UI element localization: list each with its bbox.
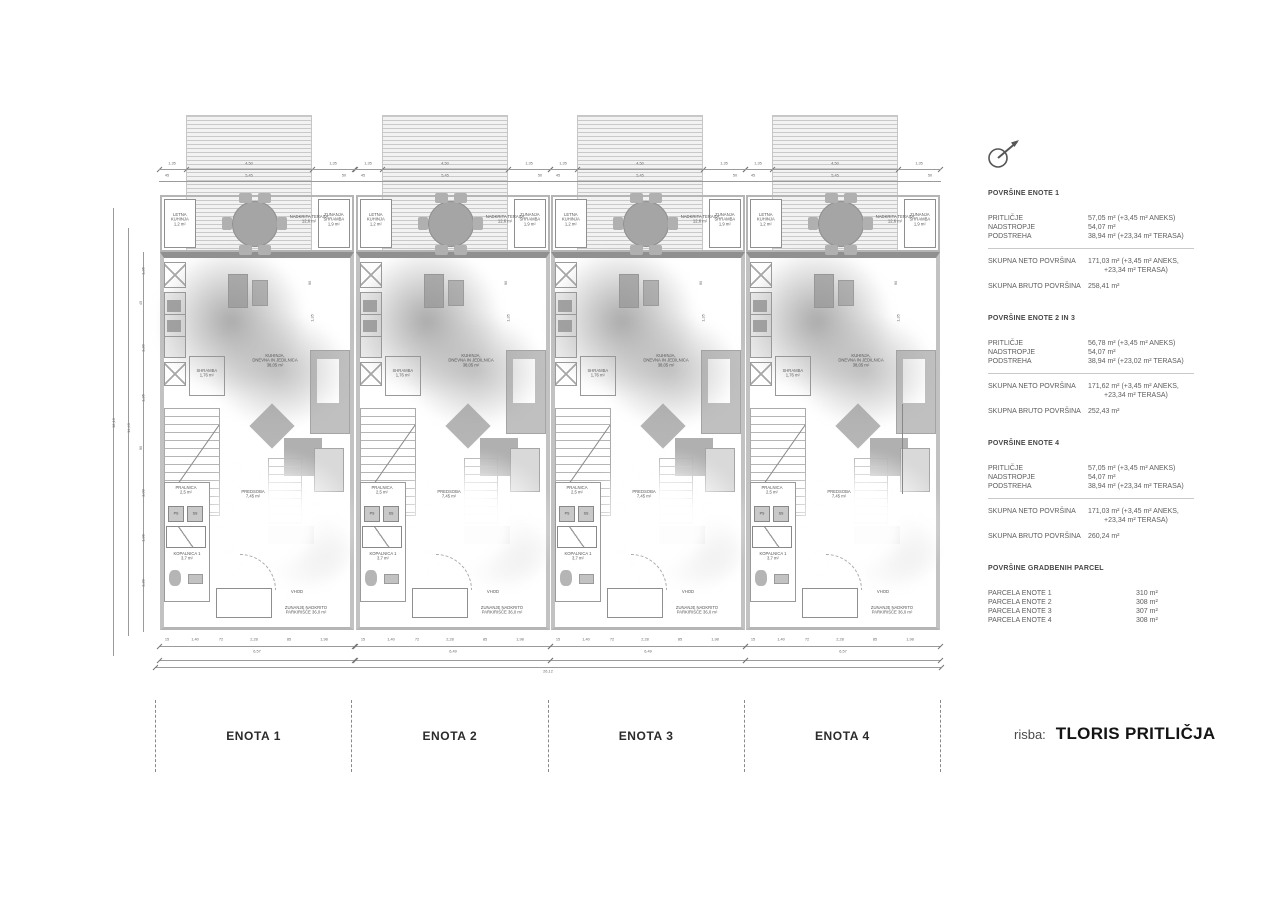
dimension-line (550, 660, 746, 661)
entrance-label: VHOD (287, 590, 308, 595)
living-room-label: KUHINJA, DNEVNA IN JEDILNICA 38,05 m² (820, 354, 903, 368)
pantry-room: SHRAMBA 1,76 m² (580, 356, 616, 396)
covered-terrace: LETNA KUHINJA 1,2 m² ZUNANJA SHRAMBA 1,9… (551, 195, 745, 252)
door-swing (240, 554, 276, 590)
dimension-line (550, 181, 746, 182)
dimension-value: 90 (139, 446, 143, 450)
dimension-value: 1,35 (720, 162, 728, 166)
dimension-value: 72 (219, 638, 223, 642)
dimension-value: 85 (678, 638, 682, 642)
dimension-value: 50 (342, 174, 346, 178)
area-block-heading: POVRŠINE ENOTE 4 (988, 440, 1218, 447)
parcel-value: 308 m² (1136, 616, 1218, 625)
dimension-value: 2,28 (836, 638, 844, 642)
door-swing (826, 554, 862, 590)
entrance-label: VHOD (483, 590, 504, 595)
stair-landing (659, 526, 705, 544)
dimension-value: 1,40 (191, 638, 199, 642)
kitchen-appliance (363, 320, 377, 332)
terrace-label: NADKRITA TERASA 12,6 m² (481, 215, 530, 225)
area-row-value: 57,05 m² (+3,45 m² ANEKS) (1088, 464, 1218, 473)
divider (988, 373, 1194, 374)
area-row: PRITLIČJE 57,05 m² (+3,45 m² ANEKS) (988, 464, 1218, 473)
dimension-value: 15 (165, 638, 169, 642)
unit-interior: SHRAMBA 1,76 m² KUHINJA, (551, 252, 745, 630)
dimension-value: 45 (165, 174, 169, 178)
furniture (838, 280, 854, 306)
room-label: SHRAMBA 1,76 m² (783, 369, 804, 379)
unit-module: 1,35 4,50 1,35 45 5,45 50 LETNA KUHINJA … (159, 115, 355, 675)
unit-interior: SHRAMBA 1,76 m² KUHINJA, (160, 252, 354, 630)
dimension-value: 15 (361, 638, 365, 642)
chair (844, 245, 857, 255)
toilet (560, 570, 572, 586)
divider (988, 248, 1194, 249)
area-block: POVRŠINE ENOTE 1 PRITLIČJE 57,05 m² (+3,… (988, 190, 1218, 291)
unit-interior: SHRAMBA 1,76 m² KUHINJA, (746, 252, 940, 630)
wardrobe (164, 262, 186, 288)
living-room-label: KUHINJA, DNEVNA IN JEDILNICA 38,05 m² (625, 354, 708, 368)
chair (630, 245, 643, 255)
area-total-label: SKUPNA BRUTO POVRŠINA (988, 282, 1088, 291)
dimension-value: 5,45 (636, 174, 644, 178)
dimension-value: 2,39 (142, 579, 146, 587)
hallway-label: PREDSOBA 7,45 m² (817, 490, 860, 500)
dimension-value: 1,35 (168, 162, 176, 166)
side-table (314, 448, 344, 492)
dimension-line (550, 646, 746, 647)
area-total-value: 171,03 m² (+3,45 m² ANEKS,+23,34 m² TERA… (1088, 507, 1218, 525)
chair (630, 193, 643, 203)
dimension-line (745, 660, 941, 661)
wardrobe (360, 362, 382, 386)
dimension-value: 85 (287, 638, 291, 642)
area-row: PRITLIČJE 56,78 m² (+3,45 m² ANEKS) (988, 339, 1218, 348)
area-row-value: 38,94 m² (+23,34 m² TERASA) (1088, 232, 1218, 241)
carport-label: ZUNANJE NADKRITO PARKIRIŠČE 36,0 m² (668, 606, 727, 616)
room-label: LETNA KUHINJA 1,2 m² (757, 213, 775, 227)
room-label: SHRAMBA 1,76 m² (393, 369, 414, 379)
covered-terrace: LETNA KUHINJA 1,2 m² ZUNANJA SHRAMBA 1,9… (746, 195, 940, 252)
dimension-value: 5,45 (245, 174, 253, 178)
area-total-row: SKUPNA NETO POVRŠINA 171,03 m² (+3,45 m²… (988, 257, 1218, 275)
utility-label: PRALNICA 2,5 m² (562, 486, 593, 496)
dimension-value: 15 (751, 638, 755, 642)
dimension-value: 2,28 (250, 638, 258, 642)
toilet (755, 570, 767, 586)
room-label: SHRAMBA 1,76 m² (588, 369, 609, 379)
dimension-line (159, 646, 355, 647)
drawing-label-prefix: risba: (1014, 727, 1046, 742)
area-block-heading: POVRŠINE ENOTE 1 (988, 190, 1218, 197)
living-room-label: KUHINJA, DNEVNA IN JEDILNICA 38,05 m² (430, 354, 513, 368)
interior-dimension-line (902, 404, 916, 494)
area-row-label: PODSTREHA (988, 482, 1088, 491)
furniture (228, 274, 248, 308)
wardrobe (750, 362, 772, 386)
area-total-label: SKUPNA BRUTO POVRŠINA (988, 532, 1088, 541)
kitchen-appliance (753, 300, 767, 312)
parcel-row: PARCELA ENOTE 1 310 m² (988, 589, 1218, 598)
chair (825, 193, 838, 203)
terrace-label: NADKRITA TERASA 12,6 m² (676, 215, 725, 225)
area-total-value: 252,43 m² (1088, 407, 1218, 416)
chair (649, 245, 662, 255)
dryer: SS (187, 506, 203, 522)
parcel-block: POVRŠINE GRADBENIH PARCEL PARCELA ENOTE … (988, 565, 1218, 625)
dimension-value: 50 (928, 174, 932, 178)
washer: PS (754, 506, 770, 522)
area-total-value: 258,41 m² (1088, 282, 1218, 291)
parcel-row: PARCELA ENOTE 3 307 m² (988, 607, 1218, 616)
dimension-value: 1,35 (754, 162, 762, 166)
dimension-value: 1,98 (142, 534, 146, 542)
dimension-value: 1,35 (142, 394, 146, 402)
area-rows: PRITLIČJE 57,05 m² (+3,45 m² ANEKS) NADS… (988, 464, 1218, 491)
dimension-value: 5,45 (441, 174, 449, 178)
unit-label-band: ENOTA 1 ENOTA 2 ENOTA 3 ENOTA 4 (155, 700, 941, 772)
covered-terrace: LETNA KUHINJA 1,2 m² ZUNANJA SHRAMBA 1,9… (356, 195, 550, 252)
bathtub (557, 526, 597, 548)
dimension-value: 50 (733, 174, 737, 178)
wardrobe (555, 362, 577, 386)
terrace-label: NADKRITA TERASA 12,6 m² (871, 215, 920, 225)
dimension-value: 50 (538, 174, 542, 178)
area-row: NADSTROPJE 54,07 m² (988, 348, 1218, 357)
unit-bay: ENOTA 3 (548, 700, 744, 772)
dimension-value: 90 (308, 281, 312, 285)
summer-kitchen-room: LETNA KUHINJA 1,2 m² (360, 199, 392, 248)
dimension-line (745, 169, 941, 170)
chair (454, 245, 467, 255)
area-row-label: NADSTROPJE (988, 348, 1088, 357)
unit-width-value: 6,49 (449, 650, 457, 654)
sink (188, 574, 203, 584)
unit-name: ENOTA 3 (619, 729, 674, 743)
carport-label: ZUNANJE NADKRITO PARKIRIŠČE 36,0 m² (863, 606, 922, 616)
dimension-value: 1,35 (364, 162, 372, 166)
area-row: PODSTREHA 38,94 m² (+23,34 m² TERASA) (988, 482, 1218, 491)
furniture (252, 280, 268, 306)
unit-module: 1,35 4,50 1,35 45 5,45 50 LETNA KUHINJA … (550, 115, 746, 675)
unit-name: ENOTA 1 (226, 729, 281, 743)
covered-terrace: LETNA KUHINJA 1,2 m² ZUNANJA SHRAMBA 1,9… (160, 195, 354, 252)
dimension-value: 4,50 (441, 162, 449, 166)
door-swing (436, 554, 472, 590)
door-swing (631, 554, 667, 590)
sink (774, 574, 789, 584)
kitchen-appliance (558, 320, 572, 332)
unit-width-value: 6,57 (253, 650, 261, 654)
dimension-value: 1,35 (559, 162, 567, 166)
dimension-value: 2,28 (446, 638, 454, 642)
area-block-heading: POVRŠINE ENOTE 2 IN 3 (988, 315, 1218, 322)
dimension-value: 4,50 (831, 162, 839, 166)
dimension-line (355, 646, 551, 647)
terrace-table (623, 201, 669, 247)
area-total-row: SKUPNA NETO POVRŠINA 171,62 m² (+3,45 m²… (988, 382, 1218, 400)
sink (579, 574, 594, 584)
hallway-label: PREDSOBA 7,45 m² (622, 490, 665, 500)
living-room-label: KUHINJA, DNEVNA IN JEDILNICA 38,05 m² (234, 354, 317, 368)
chair (418, 217, 428, 230)
area-row: NADSTROPJE 54,07 m² (988, 473, 1218, 482)
dimension-value: 45 (751, 174, 755, 178)
parcel-value: 308 m² (1136, 598, 1218, 607)
dimension-value: 1,98 (320, 638, 328, 642)
area-row-value: 54,07 m² (1088, 473, 1218, 482)
kitchen-appliance (167, 320, 181, 332)
area-row-value: 54,07 m² (1088, 223, 1218, 232)
floor-plan: 1,35 4,50 1,35 45 5,45 50 LETNA KUHINJA … (0, 0, 960, 700)
dimension-value: 45 (139, 301, 143, 305)
area-row-label: PODSTREHA (988, 357, 1088, 366)
stair-landing (268, 526, 314, 544)
dimension-value: 1,35 (507, 314, 511, 322)
area-total-value: 171,03 m² (+3,45 m² ANEKS,+23,34 m² TERA… (1088, 257, 1218, 275)
kitchen-appliance (753, 320, 767, 332)
overall-dimension-line (155, 667, 941, 668)
washer: PS (559, 506, 575, 522)
area-row-value: 57,05 m² (+3,45 m² ANEKS) (1088, 214, 1218, 223)
area-total-row: SKUPNA BRUTO POVRŠINA 260,24 m² (988, 532, 1218, 541)
dimension-tick (938, 644, 944, 650)
area-row-value: 38,94 m² (+23,02 m² TERASA) (1088, 357, 1218, 366)
dimension-value: 4,50 (245, 162, 253, 166)
dimension-value: 2,28 (641, 638, 649, 642)
wardrobe (360, 262, 382, 288)
unit-module: 1,35 4,50 1,35 45 5,45 50 LETNA KUHINJA … (745, 115, 941, 675)
kitchen-appliance (363, 300, 377, 312)
area-block: POVRŠINE ENOTE 4 PRITLIČJE 57,05 m² (+3,… (988, 440, 1218, 541)
furniture (619, 274, 639, 308)
dimension-value: 1,35 (525, 162, 533, 166)
chair (222, 217, 232, 230)
chair (808, 217, 818, 230)
area-row: PRITLIČJE 57,05 m² (+3,45 m² ANEKS) (988, 214, 1218, 223)
terrace-table (232, 201, 278, 247)
area-row-value: 56,78 m² (+3,45 m² ANEKS) (1088, 339, 1218, 348)
chair (239, 245, 252, 255)
parcel-label: PARCELA ENOTE 2 (988, 598, 1136, 607)
utility-label: PRALNICA 2,5 m² (757, 486, 788, 496)
area-row-label: PRITLIČJE (988, 339, 1088, 348)
area-row-label: NADSTROPJE (988, 223, 1088, 232)
unit-bay: ENOTA 1 (155, 700, 351, 772)
dimension-value: 85 (873, 638, 877, 642)
furniture (814, 274, 834, 308)
dryer: SS (578, 506, 594, 522)
hallway-label: PREDSOBA 7,45 m² (427, 490, 470, 500)
dimension-value: 45 (556, 174, 560, 178)
chair (239, 193, 252, 203)
pantry-room: SHRAMBA 1,76 m² (775, 356, 811, 396)
dimension-line (355, 169, 551, 170)
area-total-label: SKUPNA NETO POVRŠINA (988, 257, 1088, 275)
dimension-value: 15 (556, 638, 560, 642)
area-row-label: NADSTROPJE (988, 473, 1088, 482)
terrace-label: NADKRITA TERASA 12,6 m² (285, 215, 334, 225)
dimension-value: 90 (699, 281, 703, 285)
area-total-row: SKUPNA BRUTO POVRŠINA 252,43 m² (988, 407, 1218, 416)
wardrobe (555, 262, 577, 288)
furniture (448, 280, 464, 306)
dimension-value: 3,09 (142, 489, 146, 497)
entrance-canopy (607, 588, 663, 618)
dimension-line (159, 660, 355, 661)
unit-bay: ENOTA 4 (744, 700, 941, 772)
room-label: LETNA KUHINJA 1,2 m² (367, 213, 385, 227)
unit-width-value: 6,57 (839, 650, 847, 654)
toilet (365, 570, 377, 586)
dimension-value: 16,10 (113, 418, 117, 428)
room-label: LETNA KUHINJA 1,2 m² (171, 213, 189, 227)
dimension-line (745, 181, 941, 182)
area-row-value: 54,07 m² (1088, 348, 1218, 357)
dimension-value: 4,50 (636, 162, 644, 166)
dimension-value: 1,35 (311, 314, 315, 322)
dimension-value: 72 (805, 638, 809, 642)
chair (258, 245, 271, 255)
carport-label: ZUNANJE NADKRITO PARKIRIŠČE 36,0 m² (473, 606, 532, 616)
north-arrow-icon (984, 136, 1028, 177)
parcel-label: PARCELA ENOTE 1 (988, 589, 1136, 598)
dimension-value: 1,35 (915, 162, 923, 166)
kitchen-appliance (167, 300, 181, 312)
chair (454, 193, 467, 203)
toilet (169, 570, 181, 586)
dimension-tick (938, 658, 944, 664)
summer-kitchen-room: LETNA KUHINJA 1,2 m² (555, 199, 587, 248)
area-summary-column: POVRŠINE ENOTE 1 PRITLIČJE 57,05 m² (+3,… (988, 190, 1218, 649)
dimension-line (550, 169, 746, 170)
unit-name: ENOTA 2 (422, 729, 477, 743)
area-row-label: PODSTREHA (988, 232, 1088, 241)
area-row-label: PRITLIČJE (988, 464, 1088, 473)
chair (613, 217, 623, 230)
divider (988, 498, 1194, 499)
dimension-value: 1,98 (906, 638, 914, 642)
bathtub (166, 526, 206, 548)
dimension-line (355, 181, 551, 182)
unit-width-value: 6,49 (644, 650, 652, 654)
area-total-value: 260,24 m² (1088, 532, 1218, 541)
entrance-canopy (216, 588, 272, 618)
bathroom-label: KOPALNICA 1 3,7 m² (757, 552, 789, 562)
summer-kitchen-room: LETNA KUHINJA 1,2 m² (164, 199, 196, 248)
dimension-value: 1,98 (711, 638, 719, 642)
unit-interior: SHRAMBA 1,76 m² KUHINJA, (356, 252, 550, 630)
parcel-value: 310 m² (1136, 589, 1218, 598)
sink (384, 574, 399, 584)
dimension-value: 90 (894, 281, 898, 285)
area-rows: PRITLIČJE 56,78 m² (+3,45 m² ANEKS) NADS… (988, 339, 1218, 366)
hallway-label: PREDSOBA 7,45 m² (231, 490, 274, 500)
dimension-value: 72 (415, 638, 419, 642)
bathtub (362, 526, 402, 548)
dimension-line (113, 208, 114, 656)
area-totals: SKUPNA NETO POVRŠINA 171,03 m² (+3,45 m²… (988, 507, 1218, 541)
sofa-cushion (903, 359, 925, 403)
chair (435, 245, 448, 255)
area-total-value: 171,62 m² (+3,45 m² ANEKS,+23,34 m² TERA… (1088, 382, 1218, 400)
dimension-value: 72 (610, 638, 614, 642)
sofa-cushion (708, 359, 730, 403)
kitchen-appliance (558, 300, 572, 312)
area-totals: SKUPNA NETO POVRŠINA 171,03 m² (+3,45 m²… (988, 257, 1218, 291)
entrance-canopy (802, 588, 858, 618)
sofa-cushion (513, 359, 535, 403)
area-row: NADSTROPJE 54,07 m² (988, 223, 1218, 232)
dimension-value: 14,40 (128, 423, 132, 433)
entrance-canopy (412, 588, 468, 618)
chair (825, 245, 838, 255)
terrace-table (818, 201, 864, 247)
bathroom-label: KOPALNICA 1 3,7 m² (562, 552, 594, 562)
stair-landing (464, 526, 510, 544)
dimension-line (159, 169, 355, 170)
unit-name: ENOTA 4 (815, 729, 870, 743)
parcel-value: 307 m² (1136, 607, 1218, 616)
area-total-label: SKUPNA BRUTO POVRŠINA (988, 407, 1088, 416)
furniture (424, 274, 444, 308)
dimension-value: 3,30 (142, 344, 146, 352)
carport-label: ZUNANJE NADKRITO PARKIRIŠČE 36,0 m² (277, 606, 336, 616)
chair (844, 193, 857, 203)
area-row: PODSTREHA 38,94 m² (+23,34 m² TERASA) (988, 232, 1218, 241)
side-table (510, 448, 540, 492)
side-table (705, 448, 735, 492)
bathtub (752, 526, 792, 548)
area-total-row: SKUPNA BRUTO POVRŠINA 258,41 m² (988, 282, 1218, 291)
parcel-row: PARCELA ENOTE 2 308 m² (988, 598, 1218, 607)
area-rows: PRITLIČJE 57,05 m² (+3,45 m² ANEKS) NADS… (988, 214, 1218, 241)
drawing-title-block: risba: TLORIS PRITLIČJA (1014, 724, 1216, 744)
dimension-value: 1,35 (329, 162, 337, 166)
area-block: POVRŠINE ENOTE 2 IN 3 PRITLIČJE 56,78 m²… (988, 315, 1218, 416)
dimension-value: 1,35 (897, 314, 901, 322)
terrace-table (428, 201, 474, 247)
entrance-label: VHOD (678, 590, 699, 595)
area-totals: SKUPNA NETO POVRŠINA 171,62 m² (+3,45 m²… (988, 382, 1218, 416)
dimension-value: 45 (361, 174, 365, 178)
washer: PS (364, 506, 380, 522)
wardrobe (164, 362, 186, 386)
pantry-room: SHRAMBA 1,76 m² (189, 356, 225, 396)
room-label: SHRAMBA 1,76 m² (197, 369, 218, 379)
dimension-value: 90 (504, 281, 508, 285)
bathroom-label: KOPALNICA 1 3,7 m² (171, 552, 203, 562)
dimension-value: 1,98 (516, 638, 524, 642)
area-row: PODSTREHA 38,94 m² (+23,02 m² TERASA) (988, 357, 1218, 366)
dimension-value: 1,40 (777, 638, 785, 642)
utility-label: PRALNICA 2,5 m² (367, 486, 398, 496)
dimension-value: 85 (483, 638, 487, 642)
bathroom-label: KOPALNICA 1 3,7 m² (367, 552, 399, 562)
dimension-line (745, 646, 941, 647)
chair (649, 193, 662, 203)
area-total-label: SKUPNA NETO POVRŠINA (988, 382, 1088, 400)
dimension-line (159, 181, 355, 182)
chair (435, 193, 448, 203)
drawing-title: TLORIS PRITLIČJA (1056, 724, 1216, 744)
stair-landing (854, 526, 900, 544)
room-label: LETNA KUHINJA 1,2 m² (562, 213, 580, 227)
dimension-value: 1,40 (387, 638, 395, 642)
parcel-label: PARCELA ENOTE 3 (988, 607, 1136, 616)
pantry-room: SHRAMBA 1,76 m² (385, 356, 421, 396)
furniture (643, 280, 659, 306)
